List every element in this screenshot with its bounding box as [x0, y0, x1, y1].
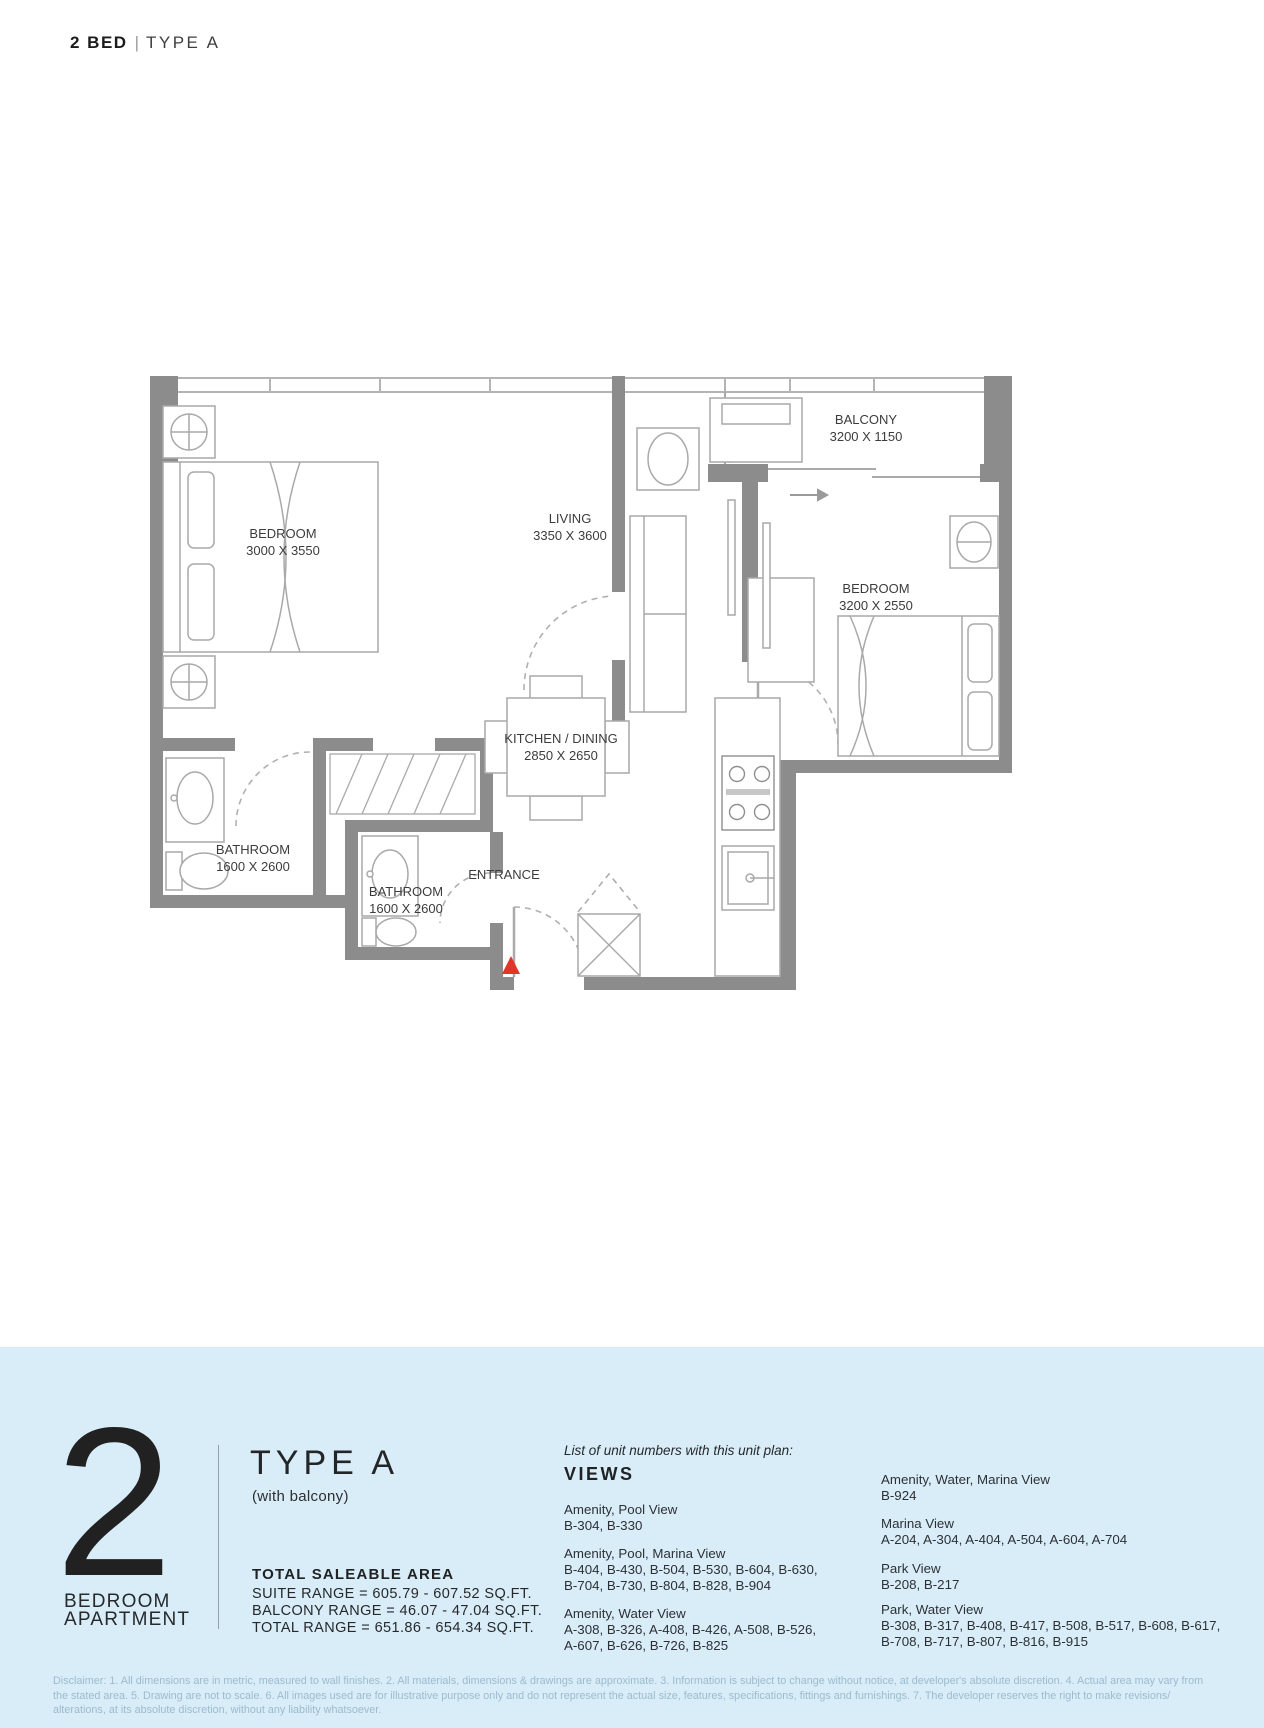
type-subtitle: (with balcony)	[252, 1488, 349, 1505]
view-group-amenity-water: Amenity, Water View A-308, B-326, A-408,…	[564, 1606, 816, 1654]
lamp-table	[637, 428, 699, 490]
view-group-units: B-708, B-717, B-807, B-816, B-915	[881, 1634, 1220, 1650]
view-group-park: Park View B-208, B-217	[881, 1561, 959, 1593]
floor-plan: BEDROOM 3000 X 3550 LIVING 3350 X 3600 B…	[150, 368, 1012, 995]
view-group-units: B-704, B-730, B-804, B-828, B-904	[564, 1578, 818, 1594]
view-group-units: B-304, B-330	[564, 1518, 677, 1534]
tv-console	[710, 398, 802, 462]
view-group-label: Marina View	[881, 1516, 1127, 1532]
views-intro: List of unit numbers with this unit plan…	[564, 1443, 793, 1458]
stove	[722, 756, 774, 830]
label-bathroom1-name: BATHROOM	[216, 842, 290, 857]
window-band	[178, 378, 984, 392]
page-title-divider: |	[128, 33, 146, 52]
view-group-label: Amenity, Water View	[564, 1606, 816, 1622]
bathroom1-sink	[166, 758, 224, 842]
type-title: TYPE A	[250, 1444, 399, 1483]
label-balcony-name: BALCONY	[835, 412, 897, 427]
label-bathroom1-dims: 1600 X 2600	[216, 859, 290, 874]
bed-2	[838, 616, 999, 756]
view-group-marina: Marina View A-204, A-304, A-404, A-504, …	[881, 1516, 1127, 1548]
label-bathroom2-dims: 1600 X 2600	[369, 901, 443, 916]
area-line-suite: SUITE RANGE = 605.79 - 607.52 SQ.FT.	[252, 1586, 542, 1603]
label-entrance: ENTRANCE	[468, 867, 540, 882]
label-kitchen-dims: 2850 X 2650	[524, 748, 598, 763]
view-group-units: A-308, B-326, A-408, B-426, A-508, B-526…	[564, 1622, 816, 1638]
label-bedroom2-dims: 3200 X 2550	[839, 598, 913, 613]
label-bathroom2-name: BATHROOM	[369, 884, 443, 899]
label-bedroom1-dims: 3000 X 3550	[246, 543, 320, 558]
label-bedroom2-name: BEDROOM	[842, 581, 909, 596]
label-living-dims: 3350 X 3600	[533, 528, 607, 543]
unit-type-line-2: APARTMENT	[64, 1611, 190, 1629]
kitchen-counter	[715, 698, 780, 976]
view-group-label: Amenity, Pool View	[564, 1502, 677, 1518]
view-group-units: B-208, B-217	[881, 1577, 959, 1593]
view-group-label: Park View	[881, 1561, 959, 1577]
view-group-label: Park, Water View	[881, 1602, 1220, 1618]
coffee-table	[748, 578, 814, 682]
area-line-total: TOTAL RANGE = 651.86 - 654.34 SQ.FT.	[252, 1620, 542, 1637]
view-group-units: B-404, B-430, B-504, B-530, B-604, B-630…	[564, 1562, 818, 1578]
area-heading: TOTAL SALEABLE AREA	[252, 1566, 454, 1583]
label-living-name: LIVING	[549, 511, 592, 526]
view-group-units: B-924	[881, 1488, 1050, 1504]
washer-unit	[578, 874, 640, 976]
unit-number: 2	[55, 1396, 173, 1608]
wardrobe-hatch	[330, 754, 475, 814]
view-group-amenity-pool: Amenity, Pool View B-304, B-330	[564, 1502, 677, 1534]
view-group-units: B-308, B-317, B-408, B-417, B-508, B-517…	[881, 1618, 1220, 1634]
floor-plan-svg: BEDROOM 3000 X 3550 LIVING 3350 X 3600 B…	[150, 368, 1012, 995]
unit-type-label: BEDROOM APARTMENT	[64, 1593, 190, 1628]
entrance-marker	[502, 956, 520, 974]
view-group-units: A-204, A-304, A-404, A-504, A-604, A-704	[881, 1532, 1127, 1548]
area-lines: SUITE RANGE = 605.79 - 607.52 SQ.FT. BAL…	[252, 1586, 542, 1636]
view-group-label: Amenity, Water, Marina View	[881, 1472, 1050, 1488]
page-title: 2 BED|TYPE A	[70, 33, 221, 53]
page-title-secondary: TYPE A	[146, 33, 221, 52]
entry-arrow-icon	[790, 490, 827, 500]
label-kitchen-name: KITCHEN / DINING	[504, 731, 617, 746]
ac-unit	[950, 516, 998, 568]
views-heading: VIEWS	[564, 1464, 635, 1485]
sofa	[630, 516, 686, 712]
view-group-label: Amenity, Pool, Marina View	[564, 1546, 818, 1562]
view-group-amenity-pool-marina: Amenity, Pool, Marina View B-404, B-430,…	[564, 1546, 818, 1594]
section-divider	[218, 1445, 219, 1629]
label-balcony-dims: 3200 X 1150	[830, 429, 903, 444]
label-bedroom1-name: BEDROOM	[249, 526, 316, 541]
page-title-primary: 2 BED	[70, 33, 128, 52]
disclaimer-text: Disclaimer: 1. All dimensions are in met…	[53, 1674, 1211, 1718]
area-line-balcony: BALCONY RANGE = 46.07 - 47.04 SQ.FT.	[252, 1603, 542, 1620]
bathroom2-toilet	[362, 918, 416, 946]
unit-type-line-1: BEDROOM	[64, 1593, 190, 1611]
kitchen-sink	[722, 846, 774, 910]
view-group-units: A-607, B-626, B-726, B-825	[564, 1638, 816, 1654]
view-group-park-water: Park, Water View B-308, B-317, B-408, B-…	[881, 1602, 1220, 1650]
view-group-amenity-water-marina: Amenity, Water, Marina View B-924	[881, 1472, 1050, 1504]
